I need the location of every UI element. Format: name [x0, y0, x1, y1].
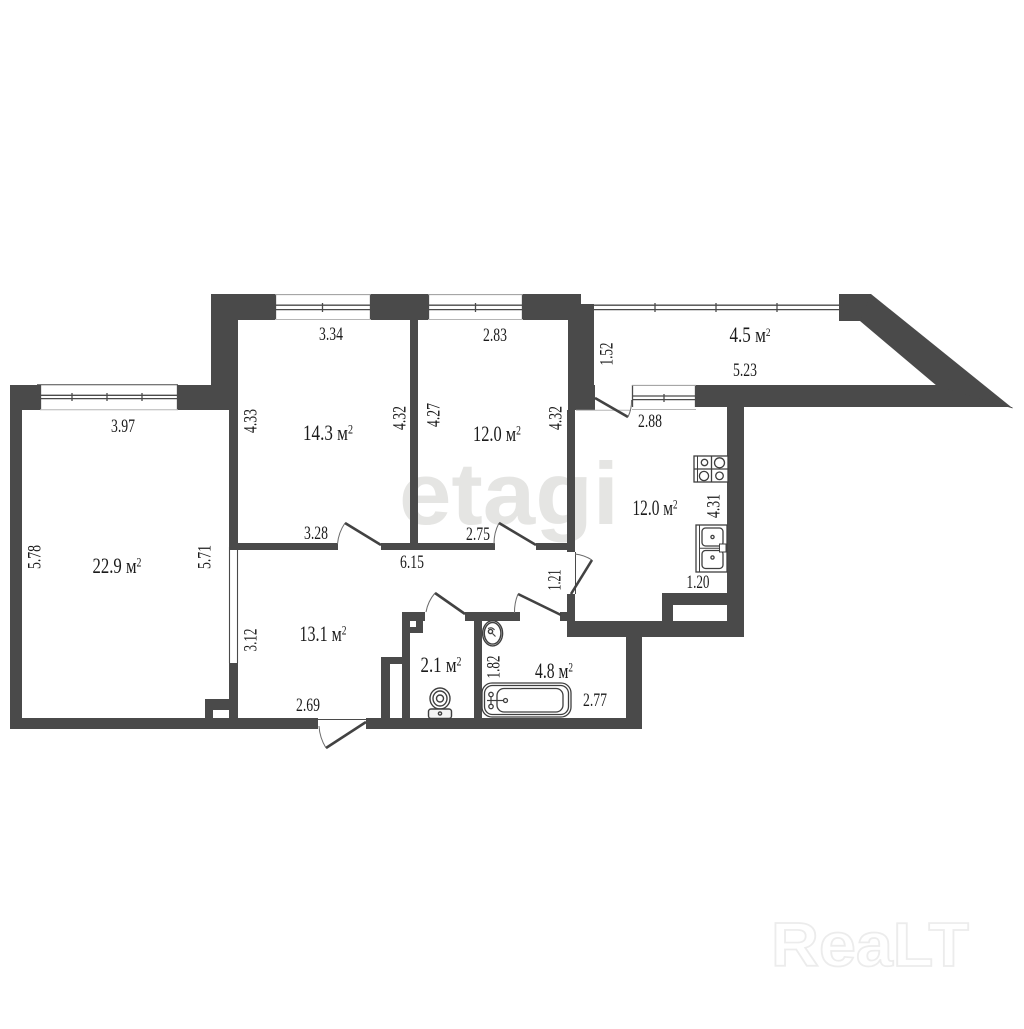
svg-text:3.97: 3.97: [111, 416, 135, 437]
svg-text:2.83: 2.83: [483, 325, 507, 346]
svg-text:12.0 м2: 12.0 м2: [473, 421, 521, 446]
svg-text:22.9 м2: 22.9 м2: [93, 553, 142, 578]
svg-text:12.0 м2: 12.0 м2: [633, 495, 678, 520]
svg-text:ReaLT: ReaLT: [771, 911, 969, 980]
svg-text:5.71: 5.71: [195, 545, 216, 569]
svg-text:1.21: 1.21: [545, 570, 566, 591]
svg-text:2.77: 2.77: [583, 690, 607, 711]
svg-text:4.33: 4.33: [241, 409, 262, 433]
svg-text:4.31: 4.31: [704, 494, 725, 518]
svg-text:13.1 м2: 13.1 м2: [300, 621, 347, 646]
svg-text:5.23: 5.23: [733, 360, 757, 381]
svg-text:4.27: 4.27: [424, 403, 445, 427]
svg-text:4.32: 4.32: [546, 406, 567, 430]
svg-text:2.88: 2.88: [638, 411, 662, 432]
svg-text:1.82: 1.82: [484, 656, 505, 679]
svg-text:4.32: 4.32: [390, 406, 411, 430]
svg-text:2.75: 2.75: [466, 524, 490, 545]
svg-text:14.3 м2: 14.3 м2: [303, 420, 353, 445]
svg-text:3.12: 3.12: [241, 629, 262, 652]
svg-text:3.34: 3.34: [319, 324, 343, 345]
svg-text:2.69: 2.69: [296, 695, 320, 716]
svg-text:6.15: 6.15: [400, 552, 424, 573]
svg-text:1.20: 1.20: [687, 572, 710, 593]
svg-text:4.5 м2: 4.5 м2: [730, 322, 771, 347]
svg-text:1.52: 1.52: [597, 343, 618, 366]
svg-text:2.1 м2: 2.1 м2: [421, 652, 462, 677]
svg-text:5.78: 5.78: [25, 545, 46, 569]
svg-text:4.8 м2: 4.8 м2: [535, 658, 573, 683]
svg-text:3.28: 3.28: [304, 523, 328, 544]
